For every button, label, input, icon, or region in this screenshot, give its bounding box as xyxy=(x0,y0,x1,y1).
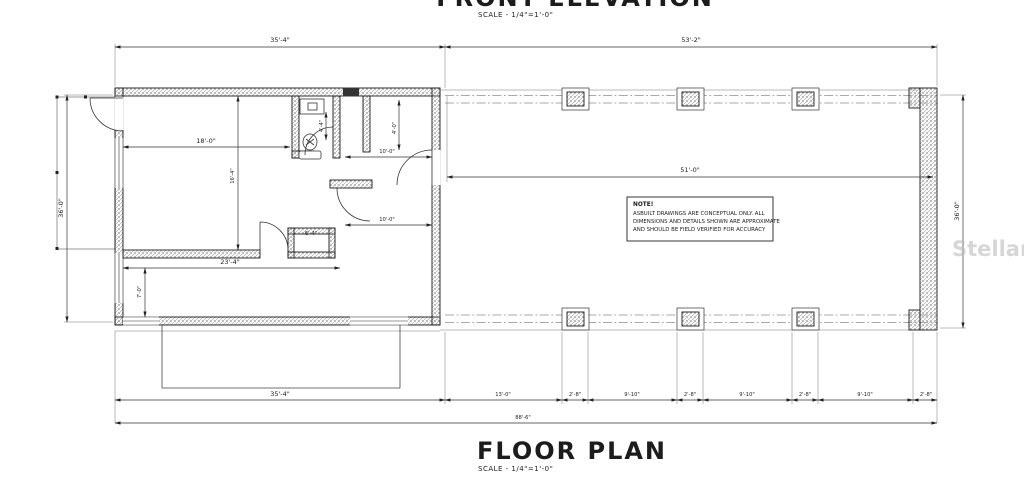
dim-bay-3: 9'-10" xyxy=(624,392,640,398)
dim-bottom-left: 35'-4" xyxy=(270,390,290,398)
dim-porch-span: 51'-0" xyxy=(680,166,700,174)
dim-lower-room-height: 7'-0" xyxy=(137,286,143,298)
dimensions-sides: 36'-0" 36'-0" xyxy=(57,95,966,328)
door-entry-right xyxy=(397,150,440,185)
watermark: StellarMLS xyxy=(952,237,1024,261)
dim-left-height: 36'-0" xyxy=(57,198,65,218)
bath-wall-right xyxy=(333,96,340,158)
dimensions-bottom: 35'-4" 13'-0" 2'-8" 9'-10" 2'-8" 9'-10" … xyxy=(115,331,937,423)
dim-top-left: 35'-4" xyxy=(270,36,290,44)
side-pad-outline xyxy=(56,96,116,251)
hall-wall xyxy=(363,96,370,152)
wall-right xyxy=(432,88,440,325)
dim-right-height: 36'-0" xyxy=(953,201,961,221)
dimensions-top: 35'-4" 53'-2" xyxy=(115,36,937,88)
floor-plan-title-block: FLOOR PLAN SCALE - 1/4"=1'-0" xyxy=(477,437,667,473)
wall-top xyxy=(115,88,440,96)
dim-bay-8: 2'-8" xyxy=(920,392,932,398)
dim-bay-7: 9'-10" xyxy=(857,392,873,398)
column-top-3 xyxy=(792,88,819,110)
floor-plan-title: FLOOR PLAN xyxy=(477,437,667,465)
toilet xyxy=(299,134,321,159)
note-box: NOTE! ASBUILT DRAWINGS ARE CONCEPTUAL ON… xyxy=(627,197,780,241)
door-hall xyxy=(337,188,370,221)
dim-bay-5: 9'-10" xyxy=(739,392,755,398)
window-bottom-left xyxy=(123,317,159,326)
patio-outline xyxy=(115,325,440,388)
dim-bay-6: 2'-8" xyxy=(799,392,811,398)
right-end-wall xyxy=(909,88,937,330)
dim-room-width: 18'-0" xyxy=(196,137,216,145)
door-lower-room xyxy=(260,222,288,250)
dim-lower-opening: 10'-0" xyxy=(379,217,395,223)
dim-lower-room-width: 23'-4" xyxy=(220,258,240,266)
dim-room-height: 16'-4" xyxy=(230,168,236,184)
front-elevation-scale: SCALE - 1/4"=1'-0" xyxy=(478,11,553,19)
dim-upper-opening: 10'-0" xyxy=(379,149,395,155)
door-exterior-left xyxy=(90,97,123,131)
dimensions-interior: 18'-0" 16'-4" 4'-4" 10'-0" 4'-0" 10'-0" … xyxy=(123,96,933,317)
column-bottom-3 xyxy=(792,308,819,330)
dim-bay-2: 2'-8" xyxy=(569,392,581,398)
doors xyxy=(90,97,440,250)
lower-wall xyxy=(123,250,260,258)
interior-walls xyxy=(123,96,372,258)
mid-wall xyxy=(330,180,372,188)
window-left-upper xyxy=(115,138,124,188)
note-heading: NOTE! xyxy=(633,202,653,208)
dim-entry-width: 4'-0" xyxy=(392,122,398,134)
column-bottom-1 xyxy=(562,308,589,330)
window-left-lower xyxy=(115,253,124,303)
column-bottom-2 xyxy=(677,308,704,330)
top-wall-vent xyxy=(343,88,359,97)
sink xyxy=(300,99,324,114)
column-top-1 xyxy=(562,88,589,110)
drawing-canvas: FRONT ELEVATION SCALE - 1/4"=1'-0" FLOOR… xyxy=(0,0,1024,500)
windows xyxy=(115,138,408,325)
dim-bay-4: 2'-8" xyxy=(684,392,696,398)
note-line-2: DIMENSIONS AND DETAILS SHOWN ARE APPROXI… xyxy=(633,219,780,225)
dim-overall-width: 88'-6" xyxy=(515,415,531,421)
floor-plan-scale: SCALE - 1/4"=1'-0" xyxy=(478,465,553,473)
note-line-3: AND SHOULD BE FIELD VERIFIED FOR ACCURAC… xyxy=(633,227,766,233)
bath-wall-left xyxy=(292,96,299,158)
dim-top-right: 53'-2" xyxy=(681,36,701,44)
dim-closet-width: 6'-4" xyxy=(305,231,317,237)
floor-plan-sheet: FRONT ELEVATION SCALE - 1/4"=1'-0" FLOOR… xyxy=(0,0,1024,500)
note-line-1: ASBUILT DRAWINGS ARE CONCEPTUAL ONLY. AL… xyxy=(633,211,764,217)
dim-bay-1: 13'-0" xyxy=(495,392,511,398)
window-bottom-right xyxy=(350,317,408,326)
front-elevation-title-block: FRONT ELEVATION SCALE - 1/4"=1'-0" xyxy=(436,0,714,19)
dim-bath-width: 4'-4" xyxy=(319,120,325,132)
column-top-2 xyxy=(677,88,704,110)
